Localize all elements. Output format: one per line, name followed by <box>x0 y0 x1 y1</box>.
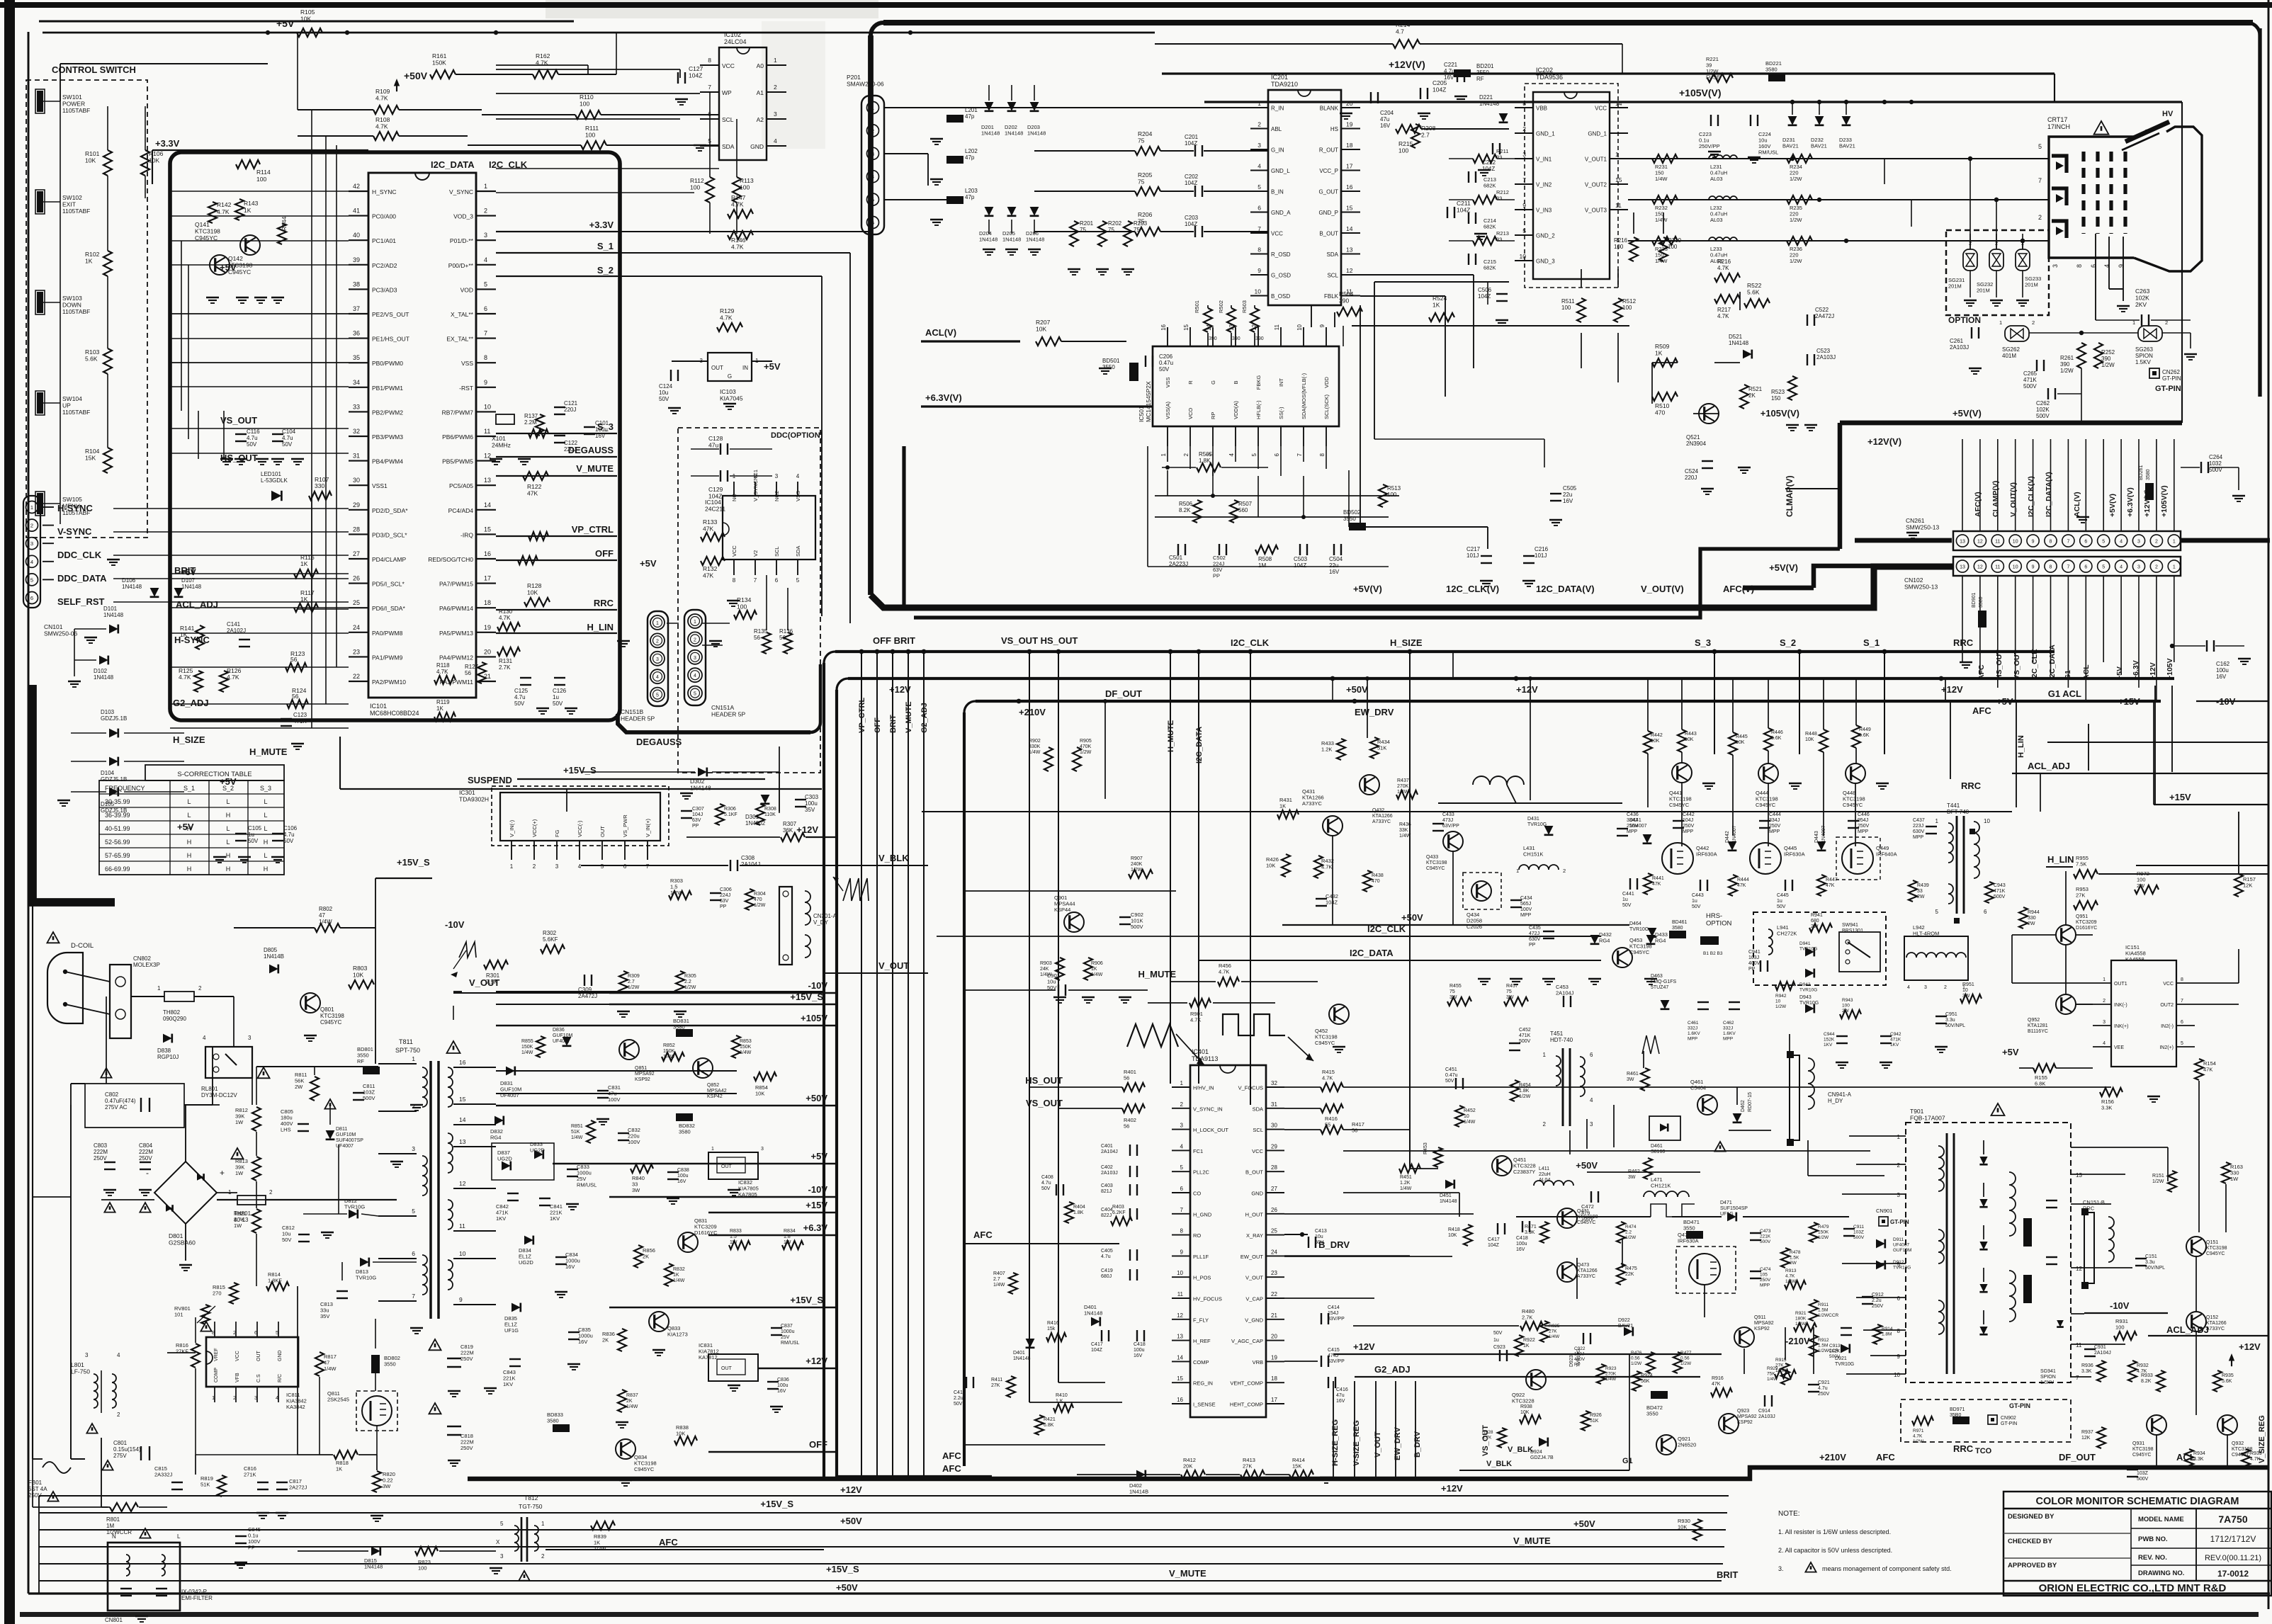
svg-text:1/4W: 1/4W <box>1785 1279 1797 1284</box>
svg-text:3: 3 <box>775 473 779 479</box>
svg-text:R137: R137 <box>524 413 538 419</box>
svg-text:VOD: VOD <box>460 286 473 293</box>
svg-text:TVR10G: TVR10G <box>1629 927 1649 932</box>
svg-text:R453: R453 <box>1423 1142 1428 1154</box>
svg-text:VS_OUT HS_OUT: VS_OUT HS_OUT <box>1001 635 1078 646</box>
svg-text:+50V: +50V <box>836 1582 858 1593</box>
svg-text:7.5K: 7.5K <box>2076 861 2086 868</box>
svg-text:H: H <box>187 852 192 859</box>
svg-text:1: 1 <box>1160 453 1167 456</box>
svg-text:11: 11 <box>2076 1342 2082 1348</box>
svg-text:R457: R457 <box>1506 984 1518 989</box>
svg-text:24: 24 <box>353 624 360 631</box>
svg-text:R142: R142 <box>217 201 232 208</box>
svg-text:8: 8 <box>484 354 487 361</box>
svg-text:H: H <box>226 852 231 859</box>
svg-text:50V: 50V <box>1777 904 1786 909</box>
svg-text:2: 2 <box>541 1553 545 1560</box>
svg-text:R216: R216 <box>1717 259 1731 265</box>
svg-text:CRT17: CRT17 <box>2047 116 2067 123</box>
svg-text:1/4W: 1/4W <box>740 1050 752 1055</box>
svg-text:R447: R447 <box>1826 878 1838 882</box>
svg-text:9: 9 <box>1522 202 1526 209</box>
svg-text:D924: D924 <box>1530 1450 1542 1455</box>
svg-text:L-53GDLK: L-53GDLK <box>261 477 288 484</box>
svg-text:2A104J: 2A104J <box>1101 1149 1118 1154</box>
svg-text:3: 3 <box>761 1147 764 1152</box>
svg-text:15k: 15k <box>1047 1327 1056 1331</box>
svg-text:4: 4 <box>656 675 659 680</box>
svg-text:R: R <box>1187 380 1194 385</box>
svg-text:R118: R118 <box>436 662 450 669</box>
svg-text:EW_DRV: EW_DRV <box>1394 1426 1402 1460</box>
svg-text:SW104: SW104 <box>62 395 82 402</box>
svg-text:VDD(A): VDD(A) <box>1233 401 1239 419</box>
svg-text:C418: C418 <box>1134 1342 1146 1347</box>
svg-text:G2_ADJ: G2_ADJ <box>1374 1364 1411 1375</box>
svg-text:PD3/D_SCL*: PD3/D_SCL* <box>372 531 407 538</box>
svg-text:330: 330 <box>315 482 324 489</box>
svg-text:VFLB(-): VFLB(-) <box>1301 373 1307 392</box>
svg-text:IN2(-): IN2(-) <box>2161 1024 2174 1029</box>
svg-text:4.7K: 4.7K <box>1322 1075 1333 1081</box>
svg-text:R923: R923 <box>1605 1366 1617 1371</box>
svg-text:D106: D106 <box>122 577 136 584</box>
svg-text:R801: R801 <box>106 1516 120 1523</box>
svg-text:S_3: S_3 <box>260 785 271 792</box>
svg-text:3: 3 <box>1180 1123 1184 1129</box>
svg-text:KSP44: KSP44 <box>1054 907 1070 913</box>
svg-text:2.2u: 2.2u <box>954 1396 963 1401</box>
svg-text:1.5KV: 1.5KV <box>2135 359 2151 365</box>
svg-text:H_REF: H_REF <box>1193 1338 1211 1344</box>
svg-text:1/4W: 1/4W <box>1655 217 1668 223</box>
svg-text:22u: 22u <box>1329 562 1338 569</box>
svg-text:R852: R852 <box>663 1043 675 1048</box>
svg-text:9: 9 <box>1257 267 1261 274</box>
svg-text:BAV21: BAV21 <box>1811 143 1827 149</box>
svg-text:+12V: +12V <box>806 1356 827 1366</box>
svg-text:473J: 473J <box>1442 818 1453 823</box>
svg-text:221K: 221K <box>1760 1234 1771 1239</box>
svg-text:6: 6 <box>484 305 487 312</box>
svg-text:1.8M: 1.8M <box>1882 1332 1892 1337</box>
svg-text:3W: 3W <box>1962 994 1970 999</box>
svg-text:R304: R304 <box>754 892 766 897</box>
svg-text:7: 7 <box>1180 1207 1184 1213</box>
svg-text:35V: 35V <box>805 807 815 813</box>
svg-text:C462: C462 <box>1723 1021 1734 1026</box>
svg-text:16V: 16V <box>1134 1353 1143 1358</box>
svg-text:L: L <box>264 852 267 859</box>
svg-text:50V: 50V <box>248 838 259 844</box>
svg-text:2W: 2W <box>1790 1261 1797 1266</box>
svg-text:3580: 3580 <box>1672 926 1683 931</box>
svg-text:R104: R104 <box>85 448 100 455</box>
svg-text:154J: 154J <box>1328 1311 1338 1316</box>
svg-text:5: 5 <box>1522 227 1526 234</box>
svg-text:C402: C402 <box>1101 1165 1113 1170</box>
svg-text:C104: C104 <box>282 428 296 435</box>
svg-text:PB3/PWM3: PB3/PWM3 <box>372 433 403 441</box>
svg-text:C124: C124 <box>659 383 673 390</box>
svg-text:C945YC: C945YC <box>1426 866 1445 871</box>
svg-text:R925: R925 <box>1549 1324 1560 1329</box>
svg-text:ABL: ABL <box>1271 126 1282 132</box>
svg-text:6: 6 <box>412 1250 415 1257</box>
svg-text:2A103J: 2A103J <box>1816 354 1836 360</box>
svg-text:+15V: +15V <box>806 1200 827 1210</box>
svg-text:8: 8 <box>1319 453 1326 456</box>
svg-text:MPSA92: MPSA92 <box>1737 1414 1757 1419</box>
svg-text:IC102: IC102 <box>724 31 741 38</box>
svg-text:GDZJ5.1B: GDZJ5.1B <box>101 715 127 722</box>
svg-text:EX_TAL**: EX_TAL** <box>446 336 473 343</box>
svg-text:104Z: 104Z <box>1185 221 1197 227</box>
svg-text:7: 7 <box>2038 177 2042 184</box>
svg-text:A733YC: A733YC <box>1302 800 1323 807</box>
svg-text:D521: D521 <box>1729 334 1743 340</box>
svg-text:10u: 10u <box>659 390 668 396</box>
svg-text:C263: C263 <box>2135 288 2150 295</box>
svg-text:10K: 10K <box>1520 1410 1530 1415</box>
svg-text:R119: R119 <box>436 699 450 705</box>
svg-text:IRF630A: IRF630A <box>1784 851 1805 858</box>
svg-text:KTA1281: KTA1281 <box>2028 1023 2048 1028</box>
svg-text:1/4W: 1/4W <box>319 919 332 925</box>
svg-text:1u: 1u <box>1777 899 1782 904</box>
svg-text:1W: 1W <box>730 1240 737 1245</box>
svg-text:CLAMP(V): CLAMP(V) <box>1991 481 2000 517</box>
svg-text:C523: C523 <box>1816 348 1831 354</box>
svg-text:471K: 471K <box>293 718 307 725</box>
svg-text:V_OUT(V): V_OUT(V) <box>2009 482 2018 517</box>
svg-text:CN802: CN802 <box>133 955 151 962</box>
svg-text:4.7K: 4.7K <box>1219 969 1229 975</box>
svg-text:+50V: +50V <box>404 70 428 81</box>
svg-text:VCC: VCC <box>235 1351 240 1361</box>
svg-text:RP: RP <box>1210 412 1216 419</box>
svg-text:D102: D102 <box>94 668 108 674</box>
svg-text:630V: 630V <box>1913 829 1925 834</box>
svg-text:V_BLK: V_BLK <box>1486 1460 1512 1468</box>
svg-text:+5V(V): +5V(V) <box>1952 408 1982 419</box>
svg-text:2.2M: 2.2M <box>524 419 537 426</box>
svg-text:DDC_DATA: DDC_DATA <box>57 573 107 584</box>
svg-text:C141: C141 <box>227 621 241 628</box>
svg-text:HFLB(-): HFLB(-) <box>1255 400 1262 419</box>
svg-text:7: 7 <box>1296 453 1303 456</box>
svg-text:3: 3 <box>248 1035 251 1041</box>
svg-text:2W: 2W <box>2028 921 2035 926</box>
svg-text:13: 13 <box>1960 565 1965 570</box>
svg-text:ACL: ACL <box>2176 1452 2195 1463</box>
svg-text:H_GND: H_GND <box>1193 1211 1212 1217</box>
svg-text:D-COIL: D-COIL <box>71 942 94 950</box>
svg-text:PP: PP <box>1748 967 1756 972</box>
svg-text:SW941: SW941 <box>1842 923 1858 928</box>
svg-text:R111: R111 <box>585 125 599 132</box>
svg-text:1/4W: 1/4W <box>1029 750 1041 755</box>
svg-text:R162: R162 <box>536 52 550 59</box>
svg-text:TCO: TCO <box>1975 1447 1992 1455</box>
svg-text:APPROVED BY: APPROVED BY <box>2008 1562 2057 1569</box>
svg-text:32: 32 <box>1271 1080 1277 1086</box>
svg-text:H: H <box>264 839 269 846</box>
svg-text:VP_CTRL: VP_CTRL <box>572 524 614 535</box>
svg-text:50V: 50V <box>954 1402 963 1407</box>
svg-text:13: 13 <box>2076 1172 2082 1179</box>
svg-text:+5V(V): +5V(V) <box>1769 562 1798 573</box>
svg-text:HEHT_COMP: HEHT_COMP <box>1230 1402 1263 1408</box>
svg-text:1.5M: 1.5M <box>1818 1308 1828 1313</box>
svg-text:9: 9 <box>459 1296 463 1303</box>
svg-text:C451: C451 <box>1445 1067 1457 1072</box>
svg-text:47u: 47u <box>1336 1393 1345 1398</box>
svg-text:3: 3 <box>2052 264 2059 268</box>
svg-text:11: 11 <box>484 428 490 435</box>
svg-text:1: 1 <box>510 863 514 870</box>
svg-text:50V: 50V <box>1493 1331 1503 1336</box>
svg-text:GT-PIN: GT-PIN <box>2155 385 2181 393</box>
svg-text:1N414B: 1N414B <box>264 953 284 960</box>
svg-text:D431: D431 <box>1527 817 1539 822</box>
svg-text:1: 1 <box>30 504 33 511</box>
svg-text:100: 100 <box>1561 305 1571 311</box>
svg-text:VCC: VCC <box>2163 982 2174 987</box>
svg-text:R441: R441 <box>1652 876 1664 881</box>
svg-text:+15V_S: +15V_S <box>563 765 597 776</box>
svg-text:H_LOCK_OUT: H_LOCK_OUT <box>1193 1127 1228 1133</box>
svg-text:R478: R478 <box>1790 1250 1801 1255</box>
svg-text:5: 5 <box>412 1208 415 1215</box>
svg-text:4.7u: 4.7u <box>1101 1254 1111 1259</box>
svg-text:50V: 50V <box>283 838 294 844</box>
svg-text:R122: R122 <box>527 483 542 490</box>
svg-text:1K: 1K <box>180 631 188 638</box>
svg-text:CN301-A: CN301-A <box>813 913 837 919</box>
svg-text:R932: R932 <box>2137 1363 2149 1368</box>
svg-text:100: 100 <box>1387 492 1397 498</box>
svg-text:C837: C837 <box>781 1324 793 1329</box>
svg-text:INK(-): INK(-) <box>2114 1003 2127 1008</box>
svg-text:C945YC: C945YC <box>1669 802 1690 808</box>
svg-text:X101: X101 <box>492 435 506 442</box>
svg-text:1: 1 <box>694 620 696 625</box>
svg-text:R207: R207 <box>1036 319 1051 326</box>
svg-text:R903: R903 <box>1040 961 1052 966</box>
svg-text:1N4148: 1N4148 <box>979 237 997 243</box>
svg-text:0.56: 0.56 <box>1631 1356 1640 1361</box>
svg-text:3.3u: 3.3u <box>1945 1018 1955 1023</box>
svg-text:56: 56 <box>754 635 760 641</box>
svg-text:OFF: OFF <box>874 717 882 733</box>
svg-text:EMI-FILTER: EMI-FILTER <box>181 1595 213 1601</box>
svg-text:500V: 500V <box>2036 413 2050 419</box>
svg-text:R912: R912 <box>1818 1338 1829 1343</box>
svg-text:500V: 500V <box>1519 1039 1531 1044</box>
svg-text:OFF BRIT: OFF BRIT <box>873 635 915 646</box>
svg-text:H_SIZE: H_SIZE <box>173 734 205 745</box>
svg-text:104Z: 104Z <box>1432 86 1446 93</box>
svg-text:5: 5 <box>1935 909 1939 915</box>
svg-text:0.47u: 0.47u <box>1159 360 1173 366</box>
svg-text:SS(-): SS(-) <box>1278 407 1284 419</box>
svg-text:1/2W: 1/2W <box>1131 868 1143 873</box>
svg-text:3.3K: 3.3K <box>2081 1369 2092 1374</box>
svg-text:MPP: MPP <box>1520 913 1532 918</box>
svg-text:VCC(+): VCC(+) <box>531 819 538 837</box>
svg-text:2: 2 <box>2165 319 2168 326</box>
svg-text:COMP: COMP <box>214 1368 219 1382</box>
svg-text:682K: 682K <box>1483 183 1496 189</box>
svg-text:565J: 565J <box>1520 902 1531 907</box>
svg-text:R442: R442 <box>1651 733 1663 738</box>
svg-text:Q931: Q931 <box>2132 1441 2144 1446</box>
svg-text:NOTE:: NOTE: <box>1778 1510 1800 1518</box>
svg-text:HS: HS <box>1330 126 1338 132</box>
svg-text:4: 4 <box>1590 1097 1593 1103</box>
svg-text:KTC3198: KTC3198 <box>2132 1447 2154 1452</box>
svg-text:C945YC: C945YC <box>228 268 251 276</box>
svg-text:VSS(A): VSS(A) <box>1165 401 1171 419</box>
svg-text:2: 2 <box>1944 985 1947 990</box>
svg-text:VS_PWR: VS_PWR <box>622 814 628 837</box>
svg-text:1KV: 1KV <box>1824 1043 1833 1047</box>
svg-text:UG2D: UG2D <box>497 1156 512 1162</box>
svg-text:104Z: 104Z <box>689 72 702 79</box>
svg-text:OUT: OUT <box>721 1366 733 1371</box>
svg-text:1.8K: 1.8K <box>1519 1089 1530 1094</box>
svg-text:223J: 223J <box>1913 824 1923 829</box>
svg-text:4.7u: 4.7u <box>1041 1181 1051 1186</box>
svg-text:1K: 1K <box>300 560 308 567</box>
svg-text:1u: 1u <box>1692 899 1697 904</box>
svg-text:36K: 36K <box>783 827 793 834</box>
svg-text:IRF630A: IRF630A <box>1696 851 1717 858</box>
svg-text:400V: 400V <box>1748 961 1760 966</box>
svg-text:R924: R924 <box>1641 1373 1653 1378</box>
svg-text:R803: R803 <box>353 965 368 972</box>
svg-text:1N4148: 1N4148 <box>690 785 711 792</box>
svg-text:IC301: IC301 <box>459 789 475 796</box>
svg-text:-10V: -10V <box>808 1184 828 1195</box>
svg-text:V_MUTE: V_MUTE <box>905 701 913 733</box>
svg-text:104J: 104J <box>692 812 703 817</box>
svg-text:6: 6 <box>2181 1020 2183 1025</box>
svg-text:500V: 500V <box>363 1095 375 1101</box>
svg-text:10K: 10K <box>1651 739 1660 744</box>
svg-text:7: 7 <box>2067 540 2069 545</box>
svg-text:2: 2 <box>30 523 33 529</box>
svg-text:Q911: Q911 <box>1754 1315 1766 1320</box>
svg-text:V_SYNC: V_SYNC <box>449 188 473 195</box>
svg-text:C.S: C.S <box>256 1374 261 1382</box>
svg-text:4.7: 4.7 <box>1396 28 1404 35</box>
svg-text:SCL: SCL <box>722 116 734 123</box>
svg-text:KTC3209: KTC3209 <box>2076 920 2097 925</box>
svg-text:19: 19 <box>1271 1354 1277 1361</box>
svg-text:1/2W: 1/2W <box>1080 750 1092 755</box>
svg-text:12: 12 <box>1251 324 1257 330</box>
svg-text:H_LIN: H_LIN <box>2047 854 2074 865</box>
svg-text:R449: R449 <box>1859 727 1871 732</box>
svg-text:2: 2 <box>656 639 659 644</box>
svg-text:11: 11 <box>1274 324 1280 330</box>
svg-text:C914: C914 <box>1758 1409 1770 1414</box>
svg-text:24C211: 24C211 <box>705 506 725 513</box>
svg-text:R129: R129 <box>720 307 735 314</box>
svg-text:D442: D442 <box>1725 831 1730 843</box>
svg-text:R108: R108 <box>375 116 390 123</box>
svg-text:R_IN: R_IN <box>1271 106 1284 112</box>
svg-text:1: 1 <box>541 1521 545 1527</box>
svg-text:F_FLY: F_FLY <box>1193 1317 1209 1323</box>
svg-text:3: 3 <box>1522 151 1526 158</box>
svg-text:MPP: MPP <box>1723 1037 1733 1042</box>
svg-text:1: 1 <box>656 621 659 626</box>
svg-text:1/2W: 1/2W <box>1519 1094 1531 1099</box>
svg-text:240K: 240K <box>1131 862 1143 867</box>
svg-text:IRF630A: IRF630A <box>1678 1238 1699 1244</box>
svg-text:FREQUENCY: FREQUENCY <box>105 785 145 792</box>
svg-text:2A103J: 2A103J <box>1101 1171 1118 1176</box>
svg-text:10K: 10K <box>1448 1233 1457 1238</box>
svg-text:3W: 3W <box>1449 995 1457 1000</box>
svg-text:V_GND: V_GND <box>1245 1317 1263 1323</box>
svg-text:KTC3228: KTC3228 <box>1512 1398 1535 1404</box>
svg-text:VCC_P: VCC_P <box>1319 168 1338 174</box>
svg-text:332J: 332J <box>1688 1026 1697 1031</box>
svg-text:250V: 250V <box>94 1155 107 1162</box>
svg-text:50V: 50V <box>1159 366 1170 373</box>
svg-text:GUF10M: GUF10M <box>553 1033 573 1038</box>
svg-text:R942: R942 <box>1775 994 1787 999</box>
svg-text:1: 1 <box>1180 1080 1184 1086</box>
svg-text:C412: C412 <box>954 1390 966 1395</box>
svg-text:270K: 270K <box>1605 1372 1617 1377</box>
svg-text:100: 100 <box>1668 244 1678 250</box>
svg-text:R404: R404 <box>1073 1205 1085 1210</box>
svg-text:75: 75 <box>1138 218 1145 225</box>
svg-text:AL04: AL04 <box>1539 1178 1550 1183</box>
svg-text:2.7K: 2.7K <box>1522 1314 1532 1321</box>
svg-text:51K: 51K <box>571 1130 580 1135</box>
svg-text:5.6KF: 5.6KF <box>543 936 558 943</box>
svg-text:23: 23 <box>1271 1270 1277 1276</box>
svg-text:19: 19 <box>1346 121 1353 128</box>
svg-text:R261: R261 <box>2060 355 2074 361</box>
svg-text:PB4/PWM4: PB4/PWM4 <box>372 458 403 465</box>
svg-text:C419: C419 <box>1101 1268 1113 1273</box>
svg-text:V_OUT: V_OUT <box>1374 1431 1382 1458</box>
svg-text:1. All resister is 1/6W unless: 1. All resister is 1/6W unless descripte… <box>1778 1528 1891 1535</box>
svg-text:7: 7 <box>2181 999 2183 1004</box>
svg-text:1N4148: 1N4148 <box>1002 237 1021 243</box>
svg-text:C405: C405 <box>1101 1249 1113 1254</box>
svg-text:C945YC: C945YC <box>2206 1251 2225 1256</box>
svg-text:TGT-750: TGT-750 <box>519 1503 543 1510</box>
svg-text:75: 75 <box>1138 178 1145 186</box>
svg-text:R136: R136 <box>779 628 793 635</box>
svg-text:PD4/CLAMP: PD4/CLAMP <box>372 556 407 563</box>
svg-text:H_SYNC: H_SYNC <box>372 188 396 195</box>
svg-text:+15V_S: +15V_S <box>826 1564 859 1574</box>
svg-text:C123: C123 <box>293 712 307 718</box>
svg-text:IX-0342-P: IX-0342-P <box>181 1589 207 1595</box>
svg-text:15K: 15K <box>1292 1463 1301 1470</box>
svg-text:H_OUT: H_OUT <box>1245 1211 1264 1217</box>
